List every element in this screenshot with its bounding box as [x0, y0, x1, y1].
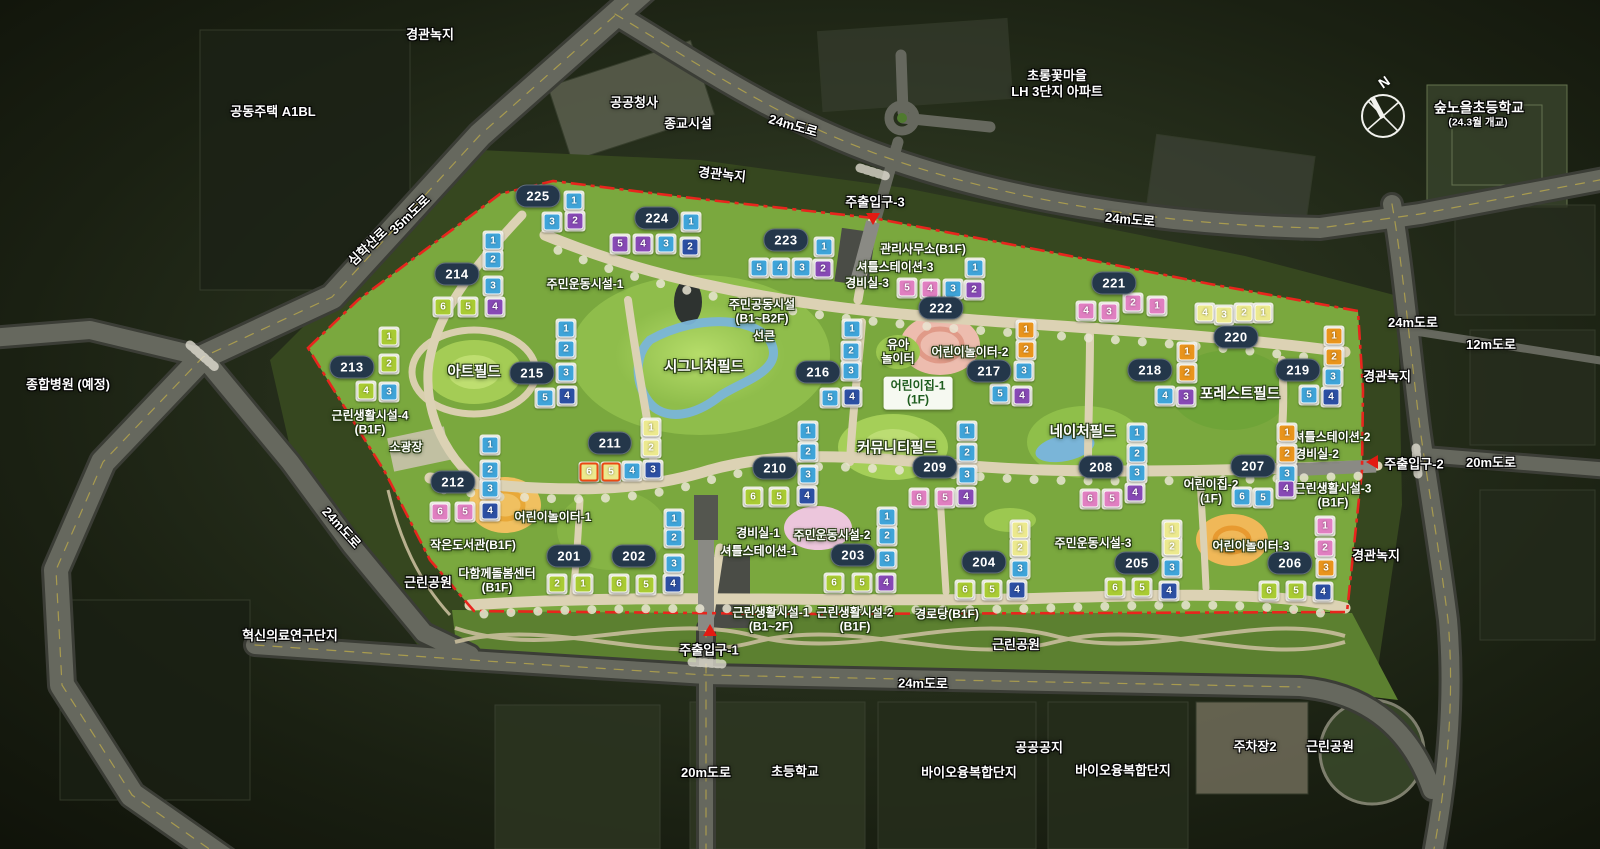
facility-label: 경비실-3: [845, 276, 889, 290]
unit-chip-213-1: 1: [381, 329, 398, 346]
unit-chip-220-1: 1: [1255, 305, 1272, 322]
unit-chip-217-1: 1: [1018, 322, 1035, 339]
unit-chip-225-2: 2: [567, 213, 584, 230]
unit-chip-213-3: 3: [381, 384, 398, 401]
unit-chip-215-3: 3: [558, 365, 575, 382]
building-badge-209: 209: [912, 456, 957, 479]
building-badge-217: 217: [966, 360, 1011, 383]
area-label: 바이오융복합단지: [921, 765, 1017, 781]
compass-n: N: [1375, 73, 1392, 92]
unit-chip-222-5: 5: [899, 280, 916, 297]
unit-chip-202-2: 2: [666, 530, 683, 547]
unit-chip-224-2: 2: [682, 239, 699, 256]
unit-chip-209-1: 1: [959, 423, 976, 440]
unit-chip-210-3: 3: [800, 467, 817, 484]
unit-chip-216-3: 3: [843, 363, 860, 380]
area-label: 12m도로: [1466, 337, 1516, 353]
unit-chip-214-6: 6: [435, 299, 452, 316]
building-badge-206: 206: [1267, 552, 1312, 575]
facility-label: 근린생활시설-3 (B1F): [1295, 482, 1372, 511]
unit-chip-207-5: 5: [1255, 490, 1272, 507]
unit-chip-205-1: 1: [1164, 522, 1181, 539]
unit-chip-214-1: 1: [485, 233, 502, 250]
unit-chip-204-5: 5: [984, 582, 1001, 599]
facility-label: 주민운동시설-1: [547, 277, 624, 291]
unit-chip-212-2: 2: [482, 462, 499, 479]
unit-chip-209-4: 4: [958, 489, 975, 506]
building-badge-202: 202: [611, 545, 656, 568]
area-label: 심학산로: [345, 225, 391, 270]
unit-chip-218-2: 2: [1179, 365, 1196, 382]
building-badge-219: 219: [1275, 359, 1320, 382]
area-label: 24m도로: [318, 504, 364, 552]
unit-chip-206-1: 1: [1317, 518, 1334, 535]
unit-chip-210-1: 1: [800, 423, 817, 440]
unit-chip-221-2: 2: [1125, 295, 1142, 312]
facility-label: 선큰: [753, 329, 775, 343]
area-label: 공공공지: [1015, 740, 1063, 756]
building-badge-210: 210: [752, 457, 797, 480]
unit-chip-211-5: 5: [602, 463, 621, 482]
unit-chip-209-6: 6: [911, 490, 928, 507]
building-badge-213: 213: [329, 356, 374, 379]
unit-chip-214-5: 5: [460, 299, 477, 316]
unit-chip-220-4: 4: [1197, 305, 1214, 322]
building-badge-205: 205: [1114, 552, 1159, 575]
unit-chip-219-4: 4: [1323, 389, 1340, 406]
unit-chip-206-3: 3: [1318, 560, 1335, 577]
entrance-arrow-down-icon: [866, 213, 880, 225]
area-label: 24m도로: [1388, 315, 1438, 331]
unit-chip-201-2: 2: [549, 576, 566, 593]
unit-chip-204-4: 4: [1009, 582, 1026, 599]
area-label: 경관녹지: [406, 27, 454, 43]
facility-label: 주민운동시설-3: [1055, 536, 1132, 550]
area-label: 35m도로: [386, 192, 433, 238]
area-label: 혁신의료연구단지: [242, 628, 338, 644]
unit-chip-225-1: 1: [566, 193, 583, 210]
area-label: 20m도로: [681, 765, 731, 781]
unit-chip-216-2: 2: [843, 343, 860, 360]
unit-chip-202-6: 6: [611, 576, 628, 593]
facility-label: 근린생활시설-2 (B1F): [817, 606, 894, 635]
facility-label: 경비실-2: [1295, 447, 1339, 461]
facility-label: 경로당(B1F): [915, 607, 979, 621]
unit-chip-218-3: 3: [1178, 389, 1195, 406]
area-label: 근린공원: [404, 575, 452, 591]
unit-chip-203-2: 2: [879, 528, 896, 545]
unit-chip-211-2: 2: [643, 440, 660, 457]
area-label: 경관녹지: [1363, 369, 1411, 385]
facility-label: 소광장: [389, 440, 422, 454]
unit-chip-222-4: 4: [922, 281, 939, 298]
unit-chip-222-3: 3: [945, 281, 962, 298]
unit-chip-218-1: 1: [1179, 344, 1196, 361]
entrance-label: 주출입구-2: [1384, 454, 1443, 473]
unit-chip-205-3: 3: [1164, 560, 1181, 577]
area-label: 24m도로: [898, 675, 948, 692]
unit-chip-215-4: 4: [559, 388, 576, 405]
facility-label: 어린이집-1 (1F): [884, 377, 953, 410]
unit-chip-213-2: 2: [381, 356, 398, 373]
area-label: 주차장2: [1233, 739, 1276, 755]
building-badge-207: 207: [1230, 455, 1275, 478]
unit-chip-212-1: 1: [482, 437, 499, 454]
area-label: 종합병원 (예정): [26, 377, 110, 393]
unit-chip-208-1: 1: [1129, 425, 1146, 442]
building-badge-214: 214: [434, 263, 479, 286]
unit-chip-218-4: 4: [1157, 388, 1174, 405]
facility-label: 아트필드: [447, 364, 500, 381]
area-label: 24m도로: [767, 111, 819, 140]
building-badge-223: 223: [763, 229, 808, 252]
unit-chip-223-3: 3: [794, 260, 811, 277]
unit-chip-221-1: 1: [1149, 298, 1166, 315]
entrance-arrow-left-icon: [1366, 455, 1378, 469]
unit-chip-202-3: 3: [666, 556, 683, 573]
unit-chip-215-1: 1: [558, 321, 575, 338]
building-badge-220: 220: [1213, 326, 1258, 349]
area-label: 공동주택 A1BL: [230, 104, 315, 120]
facility-label: 다함께돌봄센터 (B1F): [458, 567, 535, 596]
facility-label: 작은도서관(B1F): [430, 538, 516, 552]
unit-chip-220-3: 3: [1216, 307, 1233, 324]
unit-chip-205-5: 5: [1134, 580, 1151, 597]
unit-chip-215-2: 2: [558, 341, 575, 358]
unit-chip-207-1: 1: [1279, 425, 1296, 442]
area-label: 초롱꽃마을 LH 3단지 아파트: [1011, 68, 1103, 101]
facility-label: 셔틀스테이션-2: [1294, 430, 1371, 444]
facility-label: 셔틀스테이션-1: [721, 544, 798, 558]
facility-label: 포레스트필드: [1200, 386, 1280, 403]
unit-chip-209-5: 5: [937, 490, 954, 507]
unit-chip-219-3: 3: [1325, 369, 1342, 386]
building-badge-225: 225: [515, 185, 560, 208]
building-badge-215: 215: [509, 362, 554, 385]
facility-label: 네이처필드: [1050, 424, 1117, 441]
unit-chip-204-1: 1: [1012, 522, 1029, 539]
unit-chip-214-4: 4: [487, 299, 504, 316]
unit-chip-208-4: 4: [1127, 485, 1144, 502]
unit-chip-204-6: 6: [957, 582, 974, 599]
facility-label: 유아 놀이터: [881, 338, 914, 367]
facility-label: 셔틀스테이션-3: [857, 260, 934, 274]
area-label: 근린공원: [992, 637, 1040, 653]
unit-chip-206-5: 5: [1288, 583, 1305, 600]
facility-label: 어린이놀이터-1: [515, 510, 592, 524]
unit-chip-203-5: 5: [854, 575, 871, 592]
unit-chip-205-4: 4: [1161, 583, 1178, 600]
area-label: 바이오융복합단지: [1075, 763, 1171, 779]
unit-chip-212-5: 5: [457, 504, 474, 521]
area-label: (24.3월 개교): [1448, 116, 1507, 129]
unit-chip-204-3: 3: [1012, 561, 1029, 578]
unit-chip-208-3: 3: [1129, 465, 1146, 482]
unit-chip-203-4: 4: [878, 575, 895, 592]
building-badge-204: 204: [961, 551, 1006, 574]
unit-chip-207-6: 6: [1234, 489, 1251, 506]
unit-chip-221-3: 3: [1101, 304, 1118, 321]
unit-chip-217-3: 3: [1016, 363, 1033, 380]
unit-chip-203-1: 1: [879, 509, 896, 526]
unit-chip-209-3: 3: [959, 467, 976, 484]
facility-label: 어린이집-2 (1F): [1184, 478, 1239, 507]
unit-chip-222-1: 1: [967, 260, 984, 277]
unit-chip-219-2: 2: [1326, 349, 1343, 366]
entrance-label: 주출입구-3: [845, 192, 904, 211]
unit-chip-213-4: 4: [358, 383, 375, 400]
building-badge-212: 212: [430, 471, 475, 494]
unit-chip-221-4: 4: [1078, 303, 1095, 320]
unit-chip-224-3: 3: [658, 236, 675, 253]
building-badge-224: 224: [634, 207, 679, 230]
building-badge-203: 203: [830, 544, 875, 567]
unit-chip-214-2: 2: [485, 252, 502, 269]
unit-chip-211-6: 6: [580, 463, 599, 482]
unit-chip-208-2: 2: [1129, 446, 1146, 463]
unit-chip-223-4: 4: [772, 260, 789, 277]
unit-chip-217-2: 2: [1018, 342, 1035, 359]
unit-chip-215-5: 5: [537, 390, 554, 407]
area-label: 숲노을초등학교: [1434, 99, 1524, 117]
unit-chip-220-2: 2: [1236, 305, 1253, 322]
unit-chip-212-4: 4: [482, 503, 499, 520]
facility-label: 어린이놀이터-2: [932, 345, 1009, 359]
unit-chip-204-2: 2: [1012, 540, 1029, 557]
unit-chip-203-3: 3: [879, 551, 896, 568]
unit-chip-208-6: 6: [1082, 491, 1099, 508]
unit-chip-219-5: 5: [1301, 387, 1318, 404]
unit-chip-210-5: 5: [771, 489, 788, 506]
unit-chip-210-2: 2: [800, 444, 817, 461]
building-badge-221: 221: [1091, 272, 1136, 295]
unit-chip-203-6: 6: [826, 575, 843, 592]
unit-chip-210-6: 6: [745, 489, 762, 506]
entrance-arrow-up-icon: [703, 624, 717, 636]
unit-chip-216-5: 5: [822, 390, 839, 407]
area-label: 근린공원: [1306, 739, 1354, 755]
unit-chip-222-2: 2: [966, 282, 983, 299]
unit-chip-224-4: 4: [635, 236, 652, 253]
unit-chip-205-2: 2: [1164, 539, 1181, 556]
facility-label: 주민운동시설-2: [794, 528, 871, 542]
unit-chip-217-4: 4: [1014, 388, 1031, 405]
unit-chip-201-1: 1: [575, 576, 592, 593]
building-badge-201: 201: [546, 545, 591, 568]
facility-label: 근린생활시설-1 (B1~2F): [733, 606, 810, 635]
unit-chip-217-5: 5: [992, 386, 1009, 403]
unit-chip-224-5: 5: [612, 236, 629, 253]
facility-label: 근린생활시설-4 (B1F): [332, 409, 409, 438]
site-plan-canvas: N 경관녹지공동주택 A1BL공공청사종교시설24m도로초롱꽃마을 LH 3단지…: [0, 0, 1600, 849]
unit-chip-211-4: 4: [624, 463, 641, 480]
unit-chip-216-4: 4: [844, 389, 861, 406]
entrance-label: 주출입구-1: [679, 640, 738, 659]
unit-chip-211-3: 3: [645, 462, 662, 479]
label-layer: N 경관녹지공동주택 A1BL공공청사종교시설24m도로초롱꽃마을 LH 3단지…: [0, 0, 1600, 849]
building-badge-216: 216: [795, 361, 840, 384]
unit-chip-210-4: 4: [799, 488, 816, 505]
unit-chip-216-1: 1: [844, 321, 861, 338]
building-badge-211: 211: [588, 432, 632, 455]
unit-chip-206-2: 2: [1317, 540, 1334, 557]
area-label: 초등학교: [771, 764, 819, 780]
area-label: 종교시설: [664, 116, 712, 132]
unit-chip-202-5: 5: [638, 577, 655, 594]
unit-chip-223-2: 2: [815, 261, 832, 278]
unit-chip-223-5: 5: [751, 260, 768, 277]
unit-chip-202-1: 1: [666, 511, 683, 528]
unit-chip-212-6: 6: [432, 504, 449, 521]
area-label: 경관녹지: [1352, 548, 1400, 564]
unit-chip-214-3: 3: [485, 278, 502, 295]
facility-label: 주민공동시설 (B1~B2F): [729, 298, 795, 327]
area-label: 20m도로: [1466, 455, 1516, 471]
facility-label: 시그니처필드: [664, 359, 744, 376]
unit-chip-205-6: 6: [1107, 580, 1124, 597]
unit-chip-208-5: 5: [1104, 491, 1121, 508]
building-badge-208: 208: [1078, 456, 1123, 479]
unit-chip-225-3: 3: [544, 214, 561, 231]
unit-chip-212-3: 3: [482, 481, 499, 498]
building-badge-222: 222: [918, 297, 963, 320]
area-label: 공공청사: [610, 95, 658, 111]
unit-chip-206-6: 6: [1261, 583, 1278, 600]
unit-chip-207-2: 2: [1279, 446, 1296, 463]
area-label: 24m도로: [1104, 210, 1155, 231]
area-label: 경관녹지: [697, 164, 746, 185]
unit-chip-224-1: 1: [683, 214, 700, 231]
building-badge-218: 218: [1127, 359, 1172, 382]
unit-chip-211-1: 1: [643, 420, 660, 437]
unit-chip-207-4: 4: [1278, 481, 1295, 498]
unit-chip-202-4: 4: [665, 576, 682, 593]
facility-label: 경비실-1: [736, 526, 780, 540]
facility-label: 관리사무소(B1F): [880, 242, 966, 256]
unit-chip-219-1: 1: [1326, 328, 1343, 345]
unit-chip-223-1: 1: [816, 239, 833, 256]
unit-chip-206-4: 4: [1315, 584, 1332, 601]
unit-chip-209-2: 2: [959, 445, 976, 462]
